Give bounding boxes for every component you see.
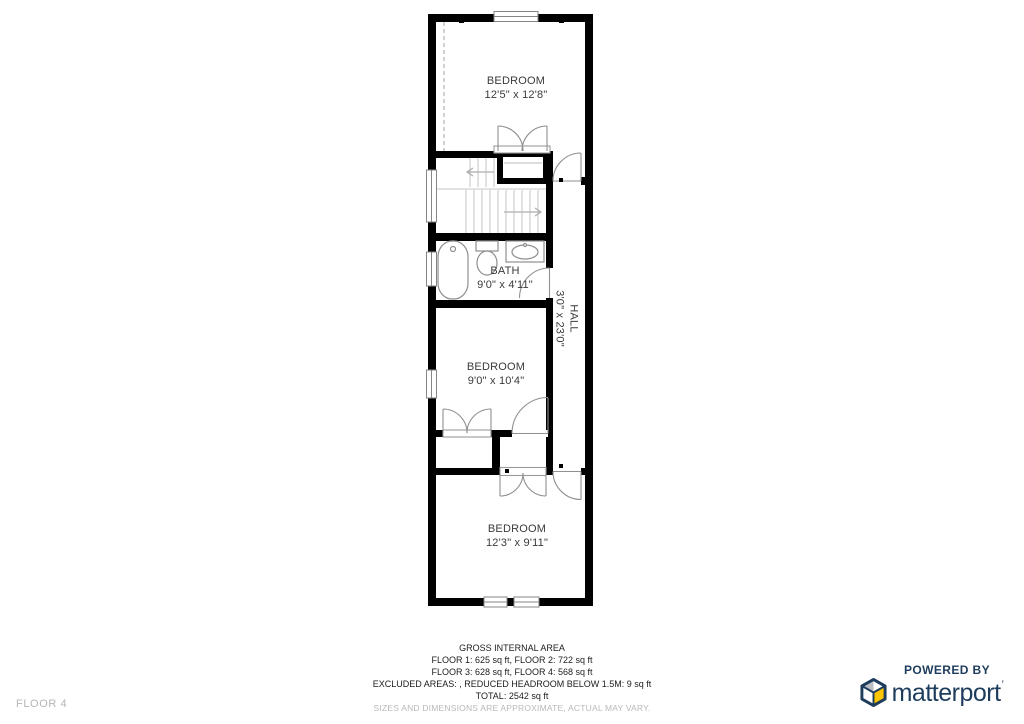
room-name: HALL	[566, 249, 580, 389]
matterport-trademark: ’	[1002, 678, 1004, 692]
room-label-bath: BATH 9'0" x 4'11"	[450, 265, 560, 292]
door-bedroom-top	[553, 153, 581, 181]
powered-by-label: POWERED BY	[904, 663, 990, 677]
bathtub-faucet	[451, 247, 456, 252]
room-name: BEDROOM	[436, 361, 556, 375]
room-label-bedroom-mid: BEDROOM 9'0" x 10'4"	[436, 361, 556, 388]
sink-faucet	[524, 244, 527, 247]
floor-indicator: FLOOR 4	[16, 698, 67, 710]
door-bedroom-mid	[512, 398, 548, 434]
room-label-bedroom-top: BEDROOM 12'5" x 12'8"	[436, 75, 596, 102]
closet-doors-mid	[443, 409, 491, 437]
room-label-bedroom-bottom: BEDROOM 12'3" x 9'11"	[437, 523, 597, 550]
door-bedroom-bottom	[553, 472, 581, 500]
closet-doors-top	[494, 126, 550, 153]
matterport-wordmark: matterport	[892, 680, 1001, 706]
summary-title: GROSS INTERNAL AREA	[0, 642, 1024, 654]
room-dimensions: 9'0" x 4'11"	[450, 279, 560, 293]
room-dimensions: 12'5" x 12'8"	[436, 89, 596, 103]
room-label-hall: HALL 3'0" x 23'0"	[553, 249, 580, 389]
matterport-cube-icon	[860, 678, 887, 707]
floorplan-page: BEDROOM 12'5" x 12'8" BATH 9'0" x 4'11" …	[0, 0, 1024, 724]
room-dimensions: 12'3" x 9'11"	[437, 537, 597, 551]
sink	[512, 245, 538, 259]
room-name: BEDROOM	[437, 523, 597, 537]
closet-top-bedroom	[500, 154, 546, 181]
room-dimensions: 9'0" x 10'4"	[436, 375, 556, 389]
matterport-logo: POWERED BY matterport ’	[860, 663, 1004, 707]
room-name: BATH	[450, 265, 560, 279]
room-name: BEDROOM	[436, 75, 596, 89]
toilet-tank	[476, 241, 498, 251]
